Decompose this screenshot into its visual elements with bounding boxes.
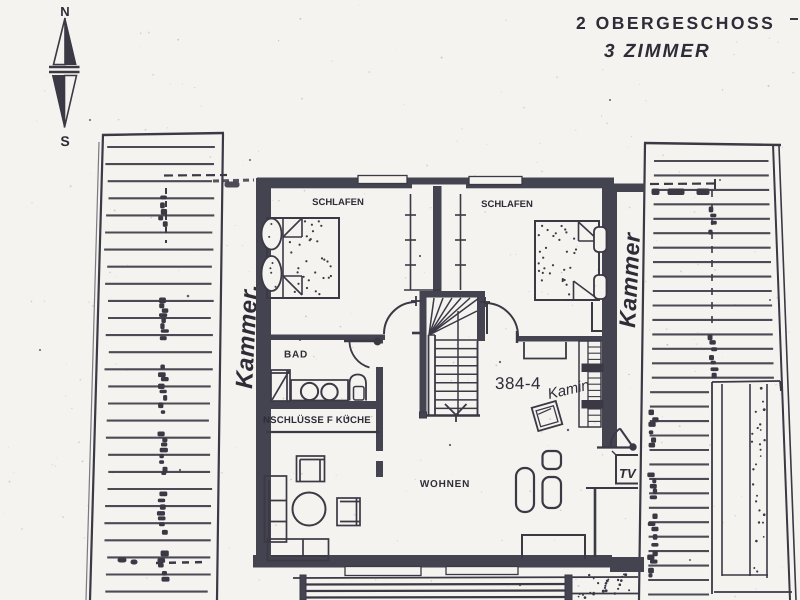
- svg-text:N: N: [60, 4, 69, 19]
- svg-text:2 OBERGESCHOSS: 2 OBERGESCHOSS: [576, 13, 775, 33]
- svg-text:Kammer: Kammer: [614, 231, 645, 328]
- svg-text:TV: TV: [619, 466, 637, 481]
- svg-text:Kamin: Kamin: [546, 377, 591, 403]
- svg-text:WOHNEN: WOHNEN: [420, 479, 470, 490]
- svg-text:384-4: 384-4: [495, 374, 541, 393]
- svg-text:SCHLAFEN: SCHLAFEN: [312, 197, 364, 208]
- svg-text:BAD: BAD: [284, 350, 308, 361]
- svg-text:3 ZIMMER: 3 ZIMMER: [604, 41, 711, 62]
- svg-text:S: S: [60, 133, 69, 149]
- svg-text:NSCHLÜSSE F KÜCHE: NSCHLÜSSE F KÜCHE: [263, 414, 371, 426]
- svg-text:SCHLAFEN: SCHLAFEN: [481, 199, 533, 210]
